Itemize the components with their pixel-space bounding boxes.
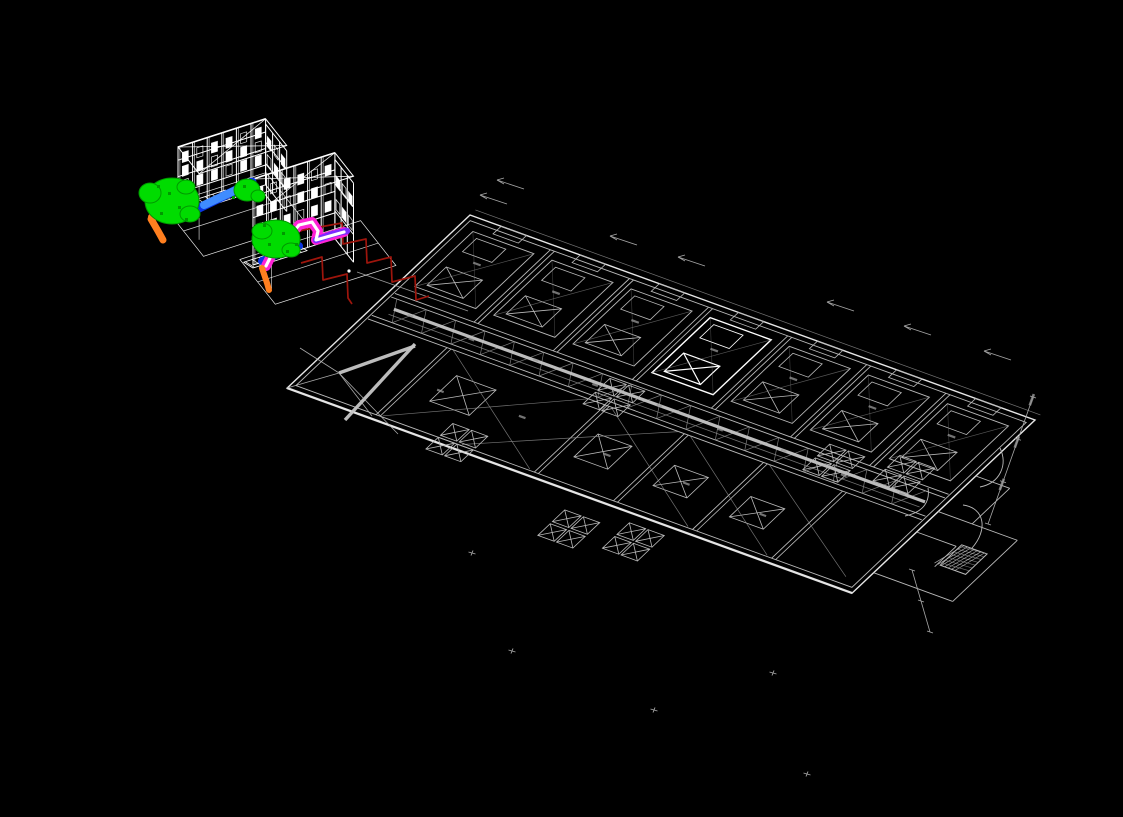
tiny-label-smudge: [1029, 394, 1036, 406]
cad-polygon[interactable]: [197, 160, 203, 172]
piping-unit-2[interactable]: [252, 220, 347, 290]
cad-line[interactable]: [440, 430, 469, 436]
cad-line[interactable]: [772, 491, 843, 558]
cad-polygon[interactable]: [197, 146, 203, 158]
cad-polygon[interactable]: [255, 155, 261, 167]
cad-line[interactable]: [475, 210, 1040, 415]
dimension-arrow[interactable]: [984, 349, 1011, 360]
cad-line[interactable]: [287, 388, 852, 593]
cad-polygon[interactable]: [463, 239, 506, 263]
dimension-arrow[interactable]: [904, 324, 931, 335]
cad-line[interactable]: [972, 488, 1010, 524]
cad-line[interactable]: [538, 530, 567, 536]
equipment-speck: [232, 196, 235, 199]
cad-polygon[interactable]: [211, 169, 217, 181]
dimension-arrow[interactable]: [827, 300, 854, 311]
equipment-blob[interactable]: [180, 206, 200, 222]
cad-line[interactable]: [391, 297, 945, 498]
piping-unit-1[interactable]: [139, 178, 265, 240]
cad-line[interactable]: [574, 446, 632, 457]
equipment-blob[interactable]: [177, 180, 195, 194]
cad-polyline[interactable]: [389, 314, 920, 507]
cad-line[interactable]: [339, 346, 415, 373]
cad-polygon[interactable]: [241, 146, 247, 158]
cad-polygon[interactable]: [325, 164, 331, 176]
cad-polygon[interactable]: [255, 127, 261, 139]
cad-line[interactable]: [617, 529, 646, 535]
cad-polygon[interactable]: [621, 296, 664, 320]
cad-line[interactable]: [571, 523, 600, 529]
cad-line[interactable]: [300, 348, 339, 373]
point-cross-marker[interactable]: [509, 649, 516, 654]
cad-polygon[interactable]: [700, 325, 743, 349]
cad-line[interactable]: [611, 407, 688, 527]
cad-polyline[interactable]: [262, 268, 269, 290]
equipment-speck: [168, 192, 171, 195]
tiny-label-smudge: [519, 415, 526, 419]
point-cross-marker[interactable]: [770, 671, 777, 676]
dimension-arrow[interactable]: [610, 234, 637, 245]
cad-polygon[interactable]: [182, 164, 188, 176]
cad-line[interactable]: [693, 462, 764, 529]
dimension-arrow[interactable]: [497, 178, 524, 189]
cad-polygon[interactable]: [542, 267, 585, 291]
cad-viewport[interactable]: [0, 0, 1123, 817]
dimension-arrow[interactable]: [480, 193, 507, 204]
cad-polygon[interactable]: [241, 160, 247, 172]
equipment-speck: [160, 212, 163, 215]
cad-line[interactable]: [678, 257, 705, 266]
cad-polygon[interactable]: [937, 411, 980, 435]
cad-line[interactable]: [480, 195, 507, 204]
cad-line[interactable]: [690, 436, 767, 556]
cad-polygon[interactable]: [336, 200, 340, 215]
cad-line[interactable]: [948, 558, 975, 566]
cad-line[interactable]: [697, 464, 768, 531]
cad-line[interactable]: [383, 399, 589, 416]
equipment-speck: [263, 224, 266, 227]
cad-polygon[interactable]: [197, 174, 203, 186]
cad-polygon[interactable]: [241, 132, 247, 144]
cad-line[interactable]: [534, 405, 605, 472]
tiny-label-smudge: [437, 389, 444, 393]
cad-line[interactable]: [917, 532, 957, 546]
cad-line[interactable]: [462, 432, 679, 445]
cad-line[interactable]: [827, 302, 854, 311]
cad-line[interactable]: [874, 573, 953, 602]
point-cross-marker[interactable]: [651, 708, 658, 713]
cad-line[interactable]: [988, 397, 1033, 524]
cad-line[interactable]: [678, 255, 685, 257]
cad-polygon[interactable]: [336, 176, 340, 191]
cad-line[interactable]: [653, 478, 708, 486]
cad-line[interactable]: [887, 461, 916, 467]
cad-line[interactable]: [827, 300, 834, 302]
cad-polygon[interactable]: [858, 382, 901, 406]
cad-polygon[interactable]: [211, 141, 217, 153]
tiny-label-smudge: [683, 481, 690, 485]
cad-line[interactable]: [984, 351, 1011, 360]
cad-polygon[interactable]: [226, 150, 232, 162]
cad-polygon[interactable]: [342, 208, 346, 223]
cad-polygon[interactable]: [281, 154, 285, 169]
cad-polygon[interactable]: [325, 201, 331, 213]
dimension-annotations[interactable]: [347, 178, 1036, 777]
equipment-speck: [185, 218, 188, 221]
cad-line[interactable]: [538, 406, 609, 473]
cad-polygon[interactable]: [284, 178, 290, 190]
cad-line[interactable]: [395, 293, 949, 494]
cad-line[interactable]: [873, 475, 902, 481]
equipment-speck: [157, 185, 160, 188]
point-cross-marker[interactable]: [804, 772, 811, 777]
cad-line[interactable]: [345, 344, 415, 420]
cad-polygon[interactable]: [298, 173, 304, 185]
cad-line[interactable]: [636, 536, 665, 542]
equipment-blob[interactable]: [251, 190, 265, 202]
cad-line[interactable]: [339, 373, 398, 434]
cad-line[interactable]: [904, 326, 931, 335]
equipment-speck: [282, 232, 285, 235]
dimension-arrow[interactable]: [678, 255, 705, 266]
equipment-blob[interactable]: [252, 223, 272, 239]
equipment-speck: [295, 243, 298, 246]
cad-line[interactable]: [480, 193, 487, 195]
cad-line[interactable]: [552, 516, 581, 522]
cad-line[interactable]: [372, 315, 926, 516]
cad-line[interactable]: [984, 349, 991, 351]
cad-line[interactable]: [497, 178, 504, 180]
floor-plan-annex[interactable]: [874, 448, 1018, 601]
equipment-speck: [243, 185, 246, 188]
cad-polyline[interactable]: [301, 257, 352, 304]
cad-polygon[interactable]: [226, 164, 232, 176]
cad-polygon[interactable]: [311, 205, 317, 217]
equipment-speck: [286, 250, 289, 253]
cad-line[interactable]: [938, 512, 1017, 541]
tiny-label-smudge: [759, 513, 766, 517]
cad-polygon[interactable]: [349, 215, 353, 230]
cad-line[interactable]: [610, 234, 617, 236]
cad-polygon[interactable]: [779, 353, 822, 377]
point-cross-marker[interactable]: [469, 551, 476, 556]
cad-line[interactable]: [610, 236, 637, 245]
equipment-speck: [268, 243, 271, 246]
point-marker[interactable]: [347, 269, 350, 272]
cad-line[interactable]: [602, 543, 631, 549]
cad-line[interactable]: [497, 180, 524, 189]
cad-polygon[interactable]: [257, 204, 263, 216]
cad-drawing-svg[interactable]: [0, 0, 1123, 817]
cad-line[interactable]: [380, 349, 451, 416]
cad-polygon[interactable]: [349, 192, 353, 207]
equipment-speck: [178, 206, 181, 209]
cad-line[interactable]: [904, 324, 911, 326]
cad-polygon[interactable]: [267, 136, 271, 151]
